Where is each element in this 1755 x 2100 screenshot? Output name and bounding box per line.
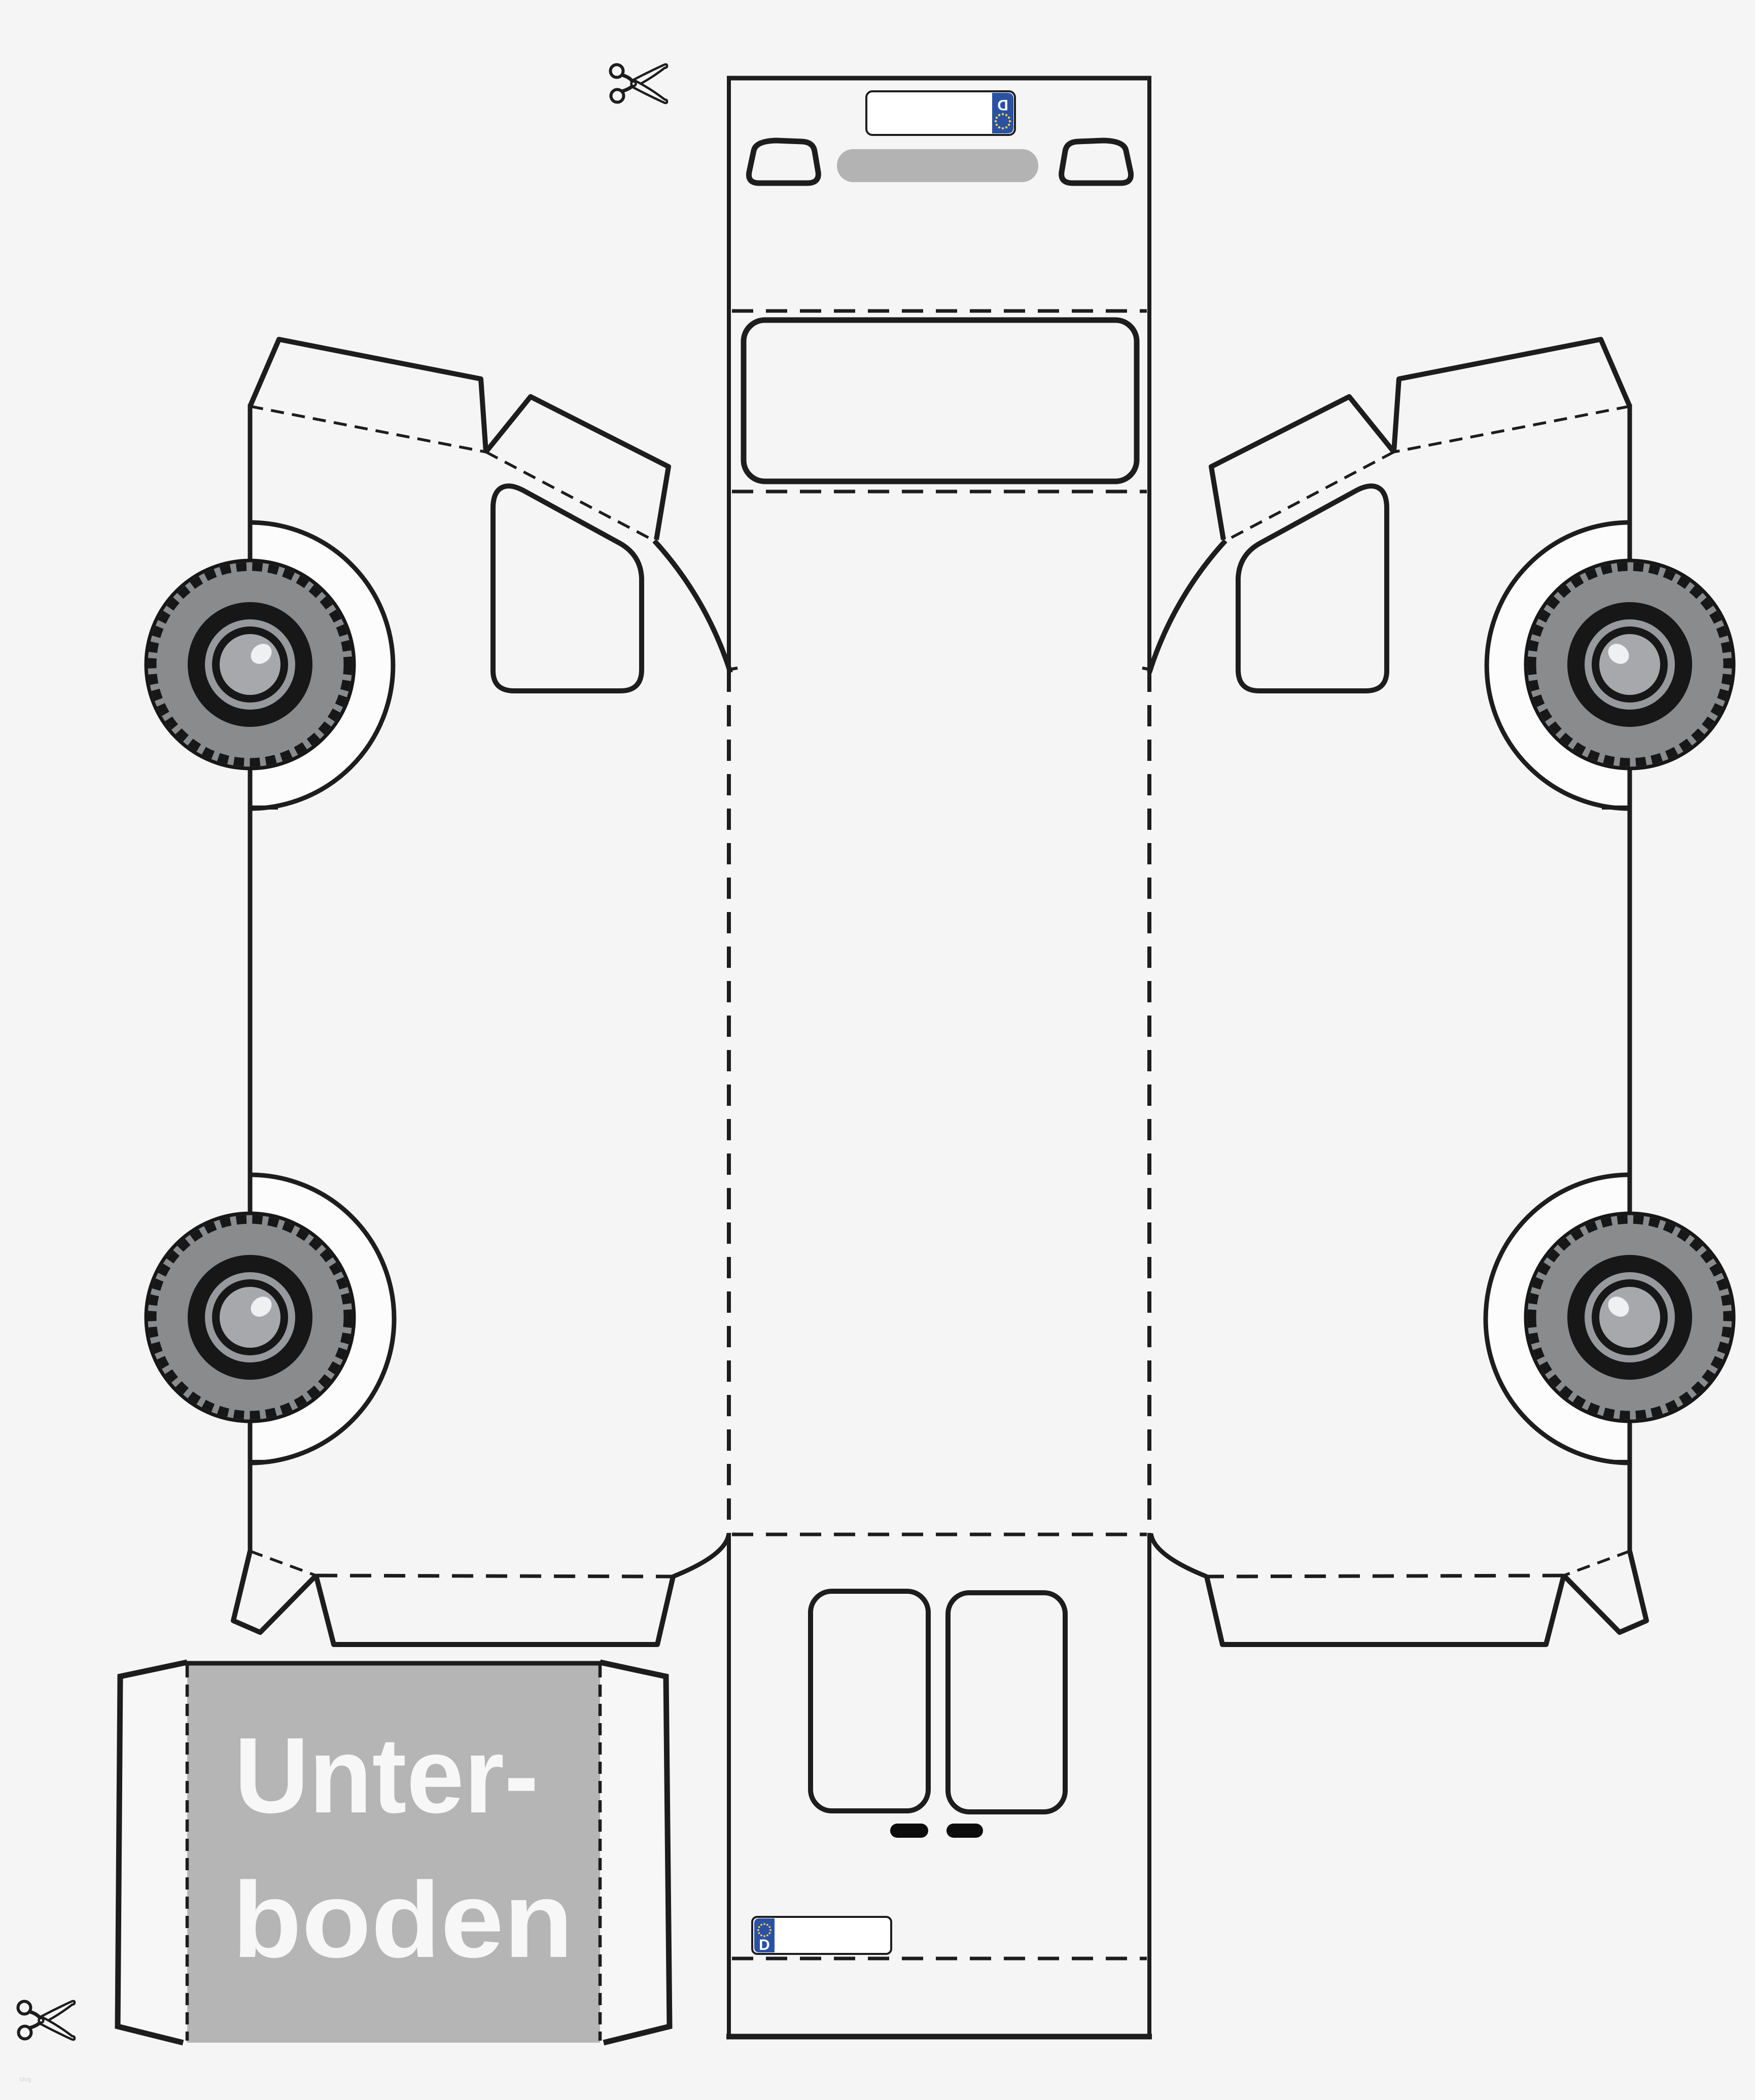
svg-text:D: D: [997, 96, 1008, 113]
svg-text:blog: blog: [20, 2076, 31, 2083]
svg-text:D: D: [759, 1937, 770, 1953]
svg-text:boden: boden: [232, 1860, 573, 1980]
svg-text:Unter-: Unter-: [234, 1715, 539, 1835]
